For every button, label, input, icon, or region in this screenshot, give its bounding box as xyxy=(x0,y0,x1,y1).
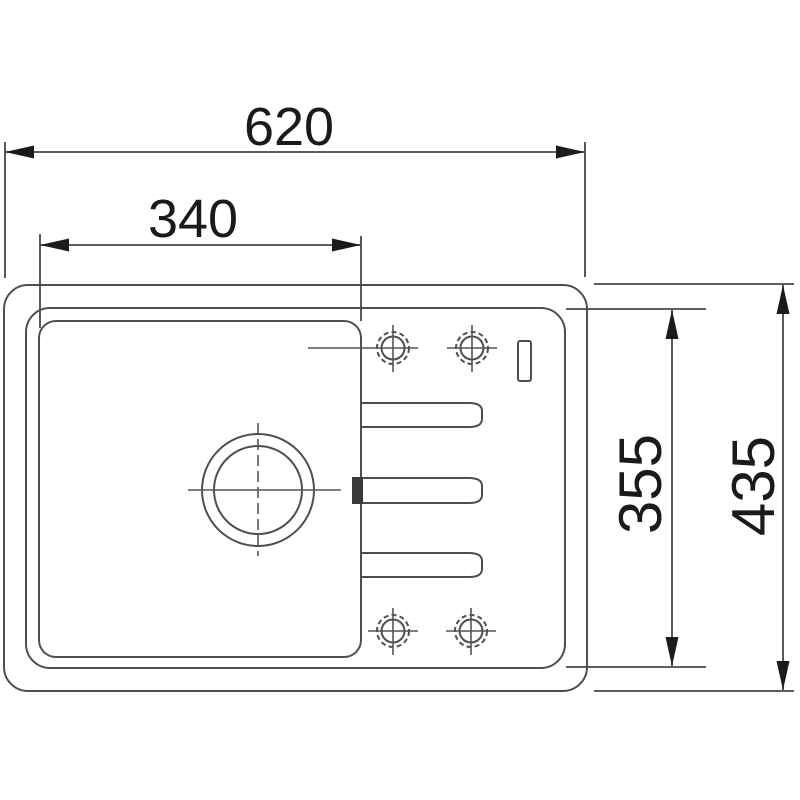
arrowhead-right-icon xyxy=(556,146,585,159)
faucet-hole-bottom-left xyxy=(368,608,418,655)
arrowhead-right-icon xyxy=(332,239,361,252)
drainboard-groove xyxy=(361,553,482,577)
sink-rim xyxy=(26,308,565,668)
faucet-hole-top-left xyxy=(308,325,418,372)
inner-depth-label: 355 xyxy=(607,434,674,534)
overall-depth-label: 435 xyxy=(720,436,787,536)
sink-bowl xyxy=(39,321,361,657)
sink-body xyxy=(4,285,587,691)
drainboard-grooves xyxy=(352,403,482,577)
faucet-hole-top-right xyxy=(447,325,497,372)
groove-connector-mark xyxy=(352,477,363,504)
overflow-slot xyxy=(518,341,531,381)
technical-drawing-canvas: 620 340 355 435 xyxy=(0,0,800,800)
drain xyxy=(188,423,341,556)
overall-width-label: 620 xyxy=(244,97,334,157)
drainboard-groove xyxy=(361,403,482,427)
arrowhead-up-icon xyxy=(777,285,790,314)
arrowhead-left-icon xyxy=(40,239,69,252)
bowl-width-label: 340 xyxy=(148,189,238,249)
arrowhead-down-icon xyxy=(777,661,790,690)
arrowhead-up-icon xyxy=(666,310,679,339)
arrowhead-left-icon xyxy=(5,146,34,159)
faucet-hole-bottom-right xyxy=(446,608,496,655)
dimension-overall-width: 620 xyxy=(5,97,585,278)
sink-dimension-drawing: 620 340 355 435 xyxy=(0,0,800,800)
sink-outer-edge xyxy=(4,285,587,691)
arrowhead-down-icon xyxy=(666,637,679,666)
drainboard-groove xyxy=(361,478,482,503)
